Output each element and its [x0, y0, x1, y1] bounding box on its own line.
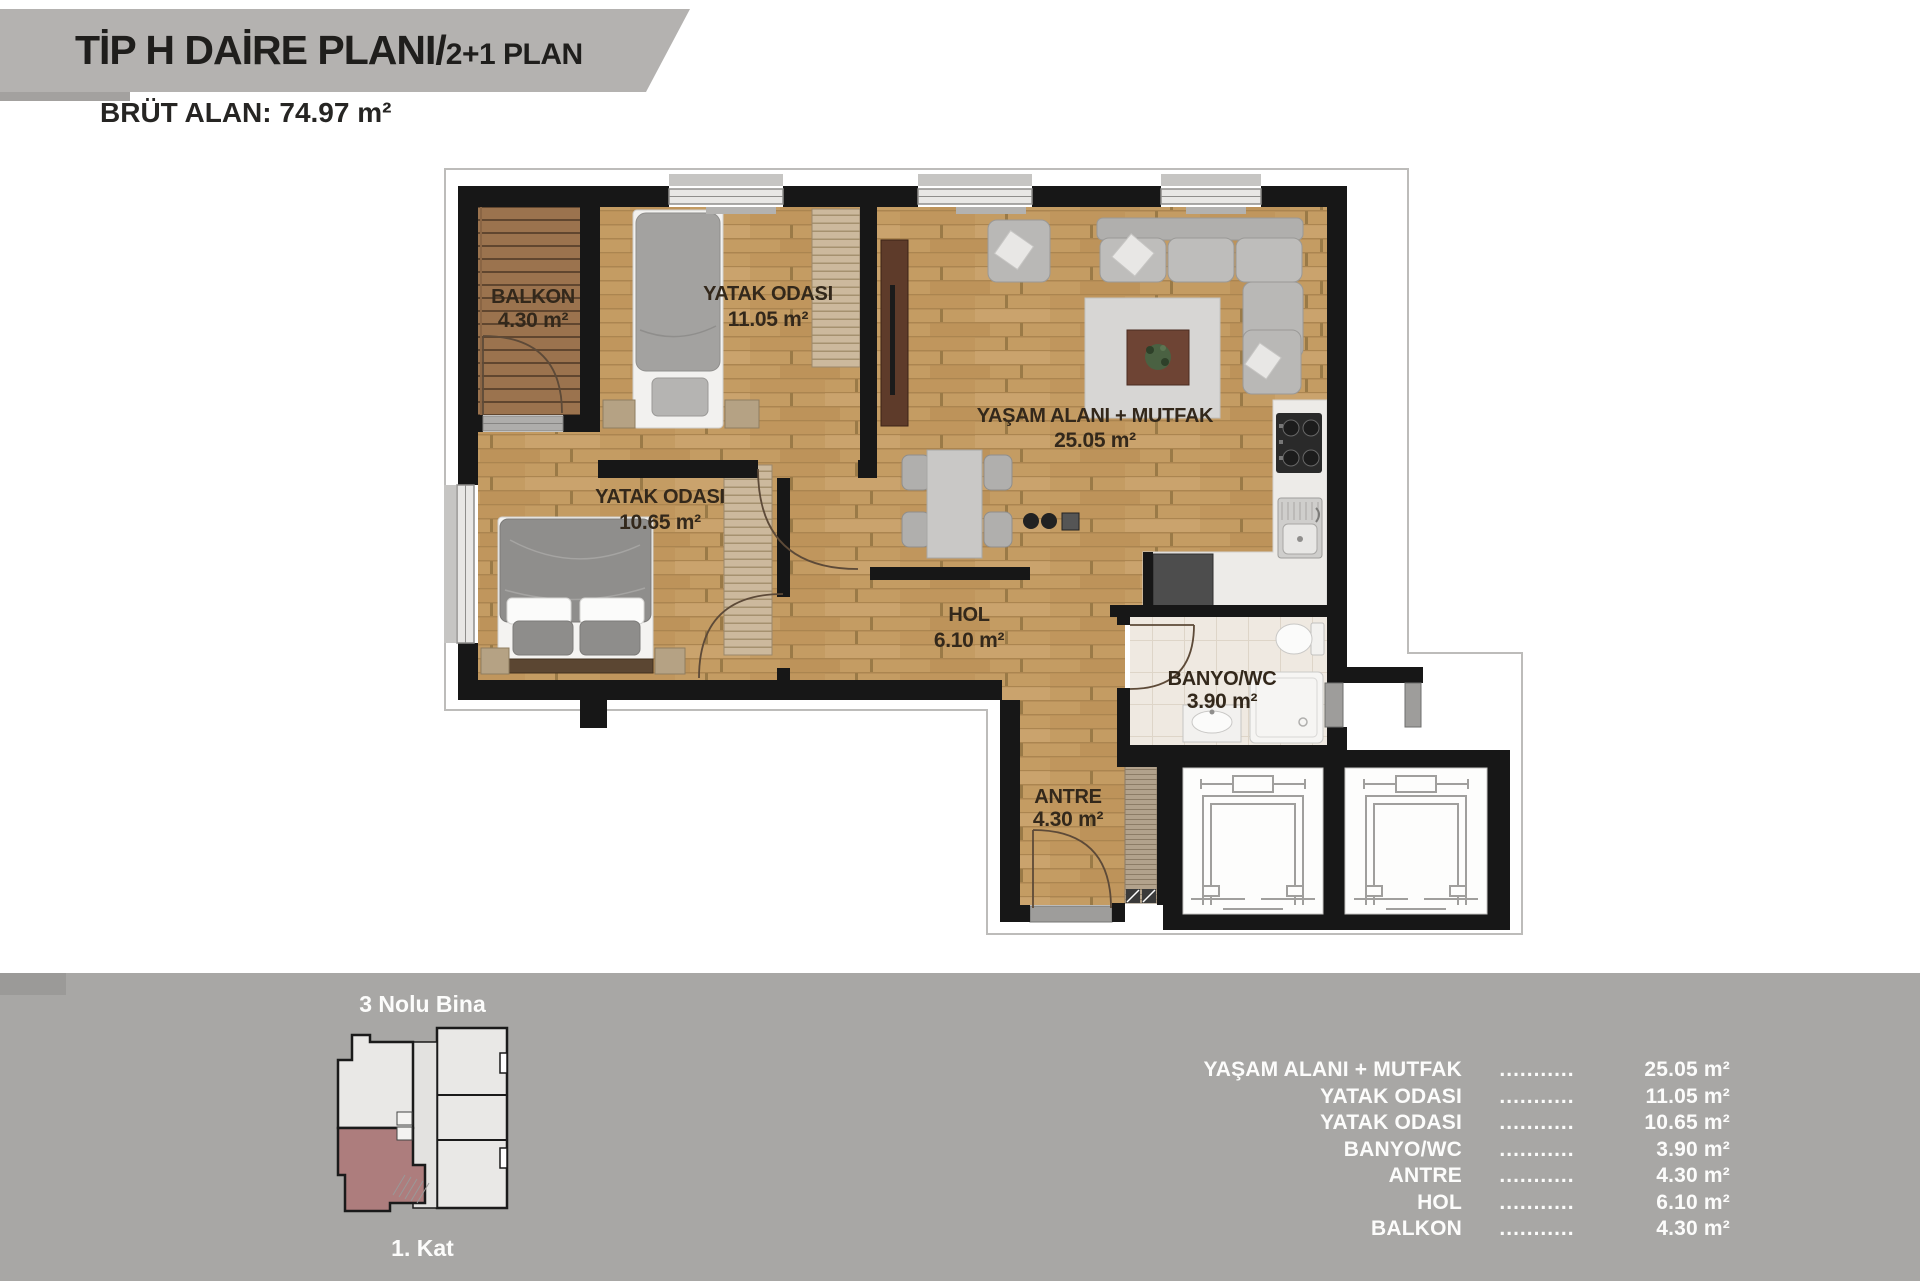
balcony-door: [483, 416, 563, 431]
room-list-label: ANTRE: [1090, 1163, 1462, 1190]
wardrobe-bed2: [724, 465, 772, 655]
room-area-list: YAŞAM ALANI + MUTFAK ........... 25.05 m…: [1090, 1057, 1730, 1243]
single-bed: [633, 210, 723, 428]
double-bed: [498, 517, 653, 673]
room-list-row: YATAK ODASI ........... 10.65 m²: [1090, 1110, 1730, 1137]
room-list-row: ANTRE ........... 4.30 m²: [1090, 1163, 1730, 1190]
room-list-dots: ...........: [1462, 1163, 1612, 1190]
room-list-label: YAŞAM ALANI + MUTFAK: [1090, 1057, 1462, 1084]
room-list-label: YATAK ODASI: [1090, 1084, 1462, 1111]
key-plan-elevator: [397, 1127, 412, 1140]
elevator-cab: [1183, 768, 1323, 914]
room-list-value: 4.30 m²: [1612, 1216, 1730, 1243]
page-title: TİP H DAİRE PLANI/2+1 PLAN: [75, 9, 583, 92]
nightstand: [481, 648, 509, 674]
room-list-dots: ...........: [1462, 1216, 1612, 1243]
window: [444, 485, 474, 643]
area-hol: 6.10 m²: [934, 629, 1005, 652]
building-label: 3 Nolu Bina: [335, 991, 510, 1018]
nightstand: [603, 400, 635, 428]
label-balkon: BALKON: [491, 286, 575, 308]
room-list-label: HOL: [1090, 1190, 1462, 1217]
toilet: [1276, 623, 1324, 655]
wall-outlet-symbols: [1023, 513, 1079, 530]
room-list-dots: ...........: [1462, 1057, 1612, 1084]
tv-unit: [881, 240, 908, 426]
room-list-value: 11.05 m²: [1612, 1084, 1730, 1111]
floor-label: 1. Kat: [335, 1235, 510, 1262]
label-yasam: YAŞAM ALANI + MUTFAK: [977, 405, 1214, 427]
area-yasam: 25.05 m²: [1054, 429, 1136, 452]
room-list-row: HOL ........... 6.10 m²: [1090, 1190, 1730, 1217]
room-list-dots: ...........: [1462, 1137, 1612, 1164]
area-yatak2: 10.65 m²: [619, 511, 701, 534]
room-list-label: BALKON: [1090, 1216, 1462, 1243]
room-list-value: 4.30 m²: [1612, 1163, 1730, 1190]
gross-area-label: BRÜT ALAN: 74.97 m²: [100, 97, 391, 129]
room-list-row: BANYO/WC ........... 3.90 m²: [1090, 1137, 1730, 1164]
label-yatak2: YATAK ODASI: [595, 486, 725, 508]
refrigerator: [1153, 554, 1213, 606]
cooktop: [1276, 413, 1322, 473]
page-title-main: TİP H DAİRE PLANI/: [75, 27, 446, 73]
entry-threshold: [1030, 906, 1112, 922]
armchair: [988, 220, 1050, 282]
room-list-row: YATAK ODASI ........... 11.05 m²: [1090, 1084, 1730, 1111]
room-list-dots: ...........: [1462, 1084, 1612, 1111]
room-list-value: 6.10 m²: [1612, 1190, 1730, 1217]
area-balkon: 4.30 m²: [498, 309, 569, 332]
room-list-label: BANYO/WC: [1090, 1137, 1462, 1164]
shaft-strip: [1125, 765, 1157, 903]
shaft-door: [1405, 683, 1421, 727]
label-yatak1: YATAK ODASI: [703, 283, 833, 305]
kitchen-sink: [1278, 498, 1322, 558]
area-banyo: 3.90 m²: [1187, 690, 1258, 713]
shaft-door: [1325, 683, 1343, 727]
room-list-row: YAŞAM ALANI + MUTFAK ........... 25.05 m…: [1090, 1057, 1730, 1084]
armchair: [1243, 330, 1301, 394]
label-antre: ANTRE: [1034, 786, 1101, 808]
room-list-row: BALKON ........... 4.30 m²: [1090, 1216, 1730, 1243]
nightstand: [655, 648, 685, 674]
footer-notch: [0, 973, 66, 995]
key-plan-unit: [437, 1028, 507, 1208]
coffee-table: [1127, 330, 1189, 385]
elevator-cab: [1345, 768, 1487, 914]
nightstand: [725, 400, 759, 428]
room-list-value: 25.05 m²: [1612, 1057, 1730, 1084]
room-list-label: YATAK ODASI: [1090, 1110, 1462, 1137]
footer-band: 3 Nolu Bina 1. Kat YAŞAM ALANI + MU: [0, 973, 1920, 1281]
room-list-value: 3.90 m²: [1612, 1137, 1730, 1164]
key-plan: [335, 1023, 510, 1213]
floor-plan-page: TİP H DAİRE PLANI/2+1 PLAN BRÜT ALAN: 74…: [0, 0, 1920, 1281]
area-yatak1: 11.05 m²: [728, 308, 809, 331]
room-list-value: 10.65 m²: [1612, 1110, 1730, 1137]
room-list-dots: ...........: [1462, 1110, 1612, 1137]
label-banyo: BANYO/WC: [1168, 668, 1277, 690]
key-plan-elevator: [397, 1112, 412, 1125]
room-list-dots: ...........: [1462, 1190, 1612, 1217]
area-antre: 4.30 m²: [1033, 808, 1104, 831]
page-title-sub: 2+1 PLAN: [446, 38, 583, 71]
label-hol: HOL: [948, 604, 989, 626]
